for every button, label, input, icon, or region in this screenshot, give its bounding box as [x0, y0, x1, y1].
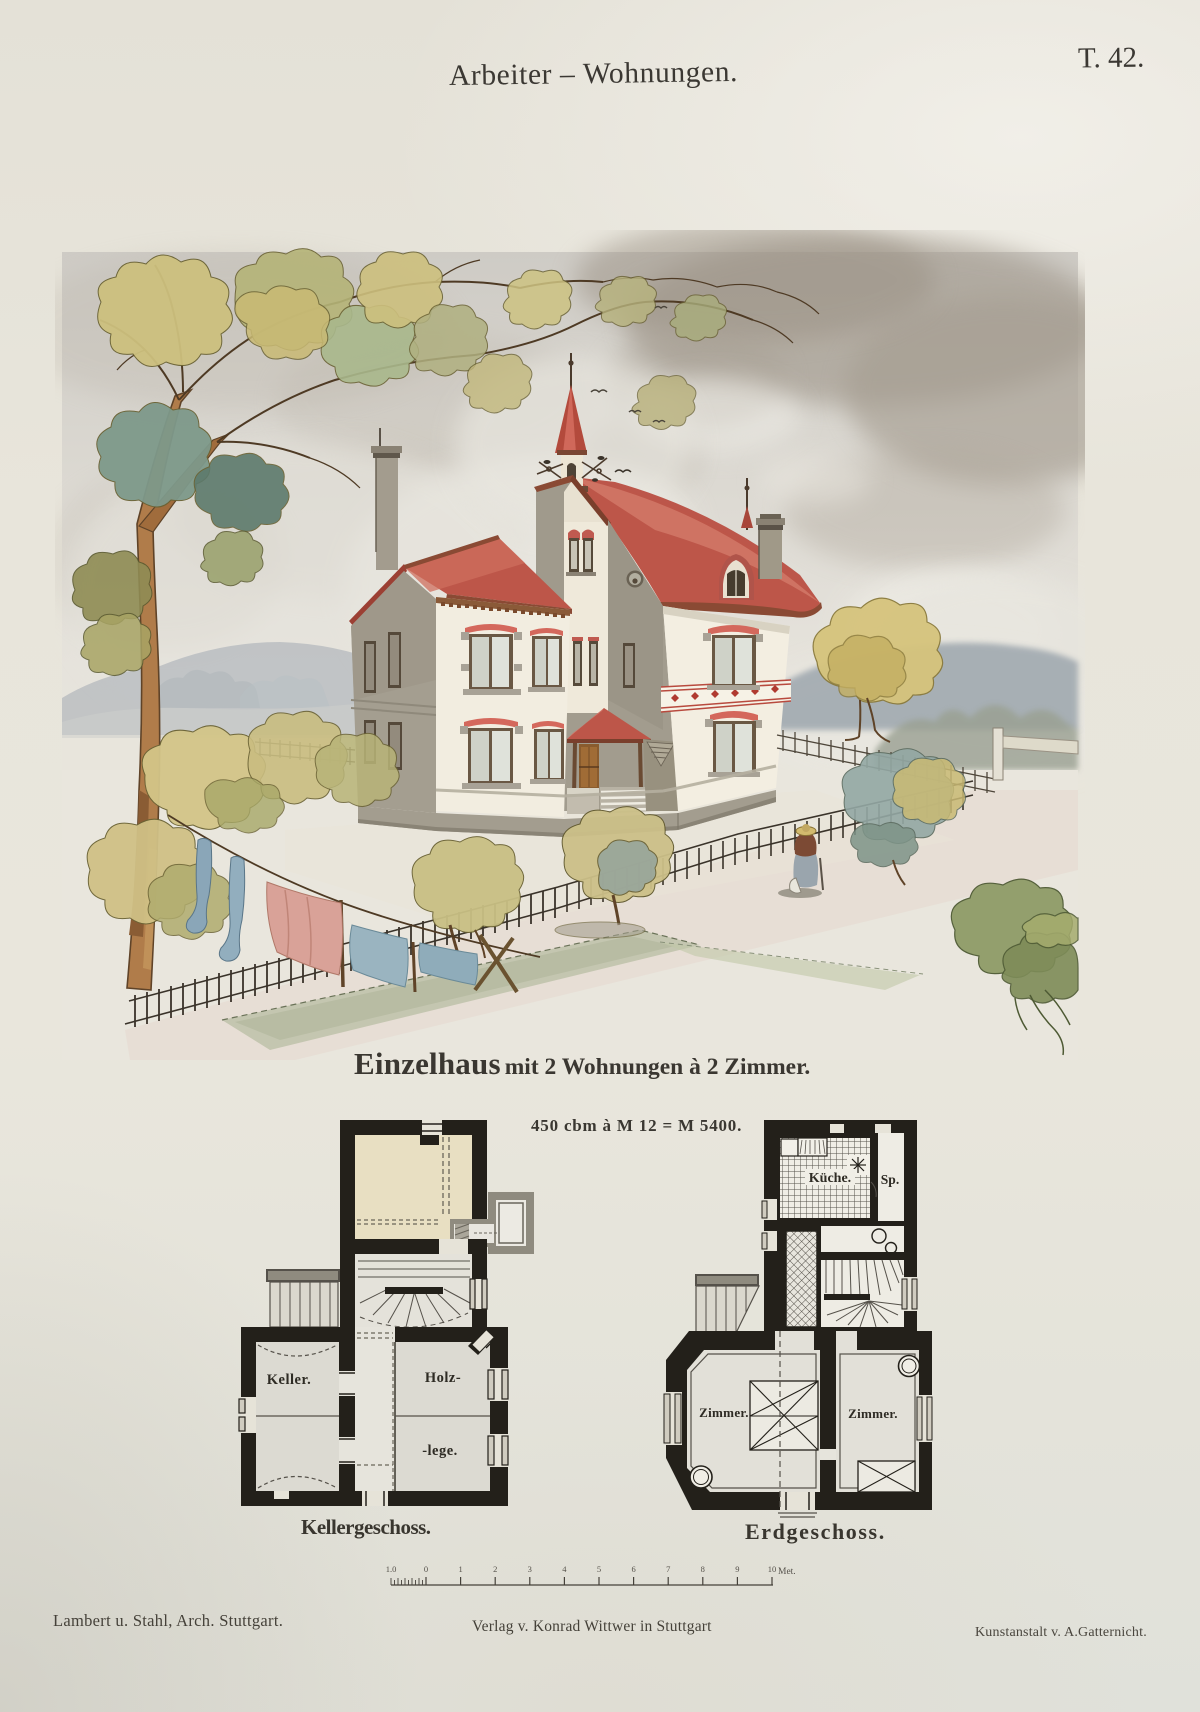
svg-text:1.0: 1.0 — [386, 1564, 397, 1574]
svg-text:7: 7 — [666, 1564, 670, 1574]
svg-text:Küche.: Küche. — [809, 1171, 851, 1186]
svg-text:4: 4 — [562, 1564, 567, 1574]
svg-text:Zimmer.: Zimmer. — [699, 1405, 749, 1420]
svg-text:2: 2 — [493, 1564, 497, 1574]
svg-text:5: 5 — [597, 1564, 601, 1574]
svg-text:Sp.: Sp. — [881, 1172, 899, 1187]
svg-text:Zimmer.: Zimmer. — [848, 1406, 898, 1421]
svg-text:Keller.: Keller. — [267, 1372, 311, 1388]
svg-text:-lege.: -lege. — [422, 1443, 458, 1459]
svg-text:8: 8 — [701, 1564, 705, 1574]
svg-text:0: 0 — [424, 1564, 428, 1574]
svg-text:10: 10 — [768, 1564, 777, 1574]
svg-text:Holz-: Holz- — [425, 1370, 461, 1386]
svg-text:Met.: Met. — [778, 1567, 796, 1577]
svg-text:6: 6 — [631, 1564, 635, 1574]
svg-text:1: 1 — [458, 1564, 462, 1574]
svg-text:3: 3 — [528, 1564, 532, 1574]
svg-text:9: 9 — [735, 1564, 739, 1574]
